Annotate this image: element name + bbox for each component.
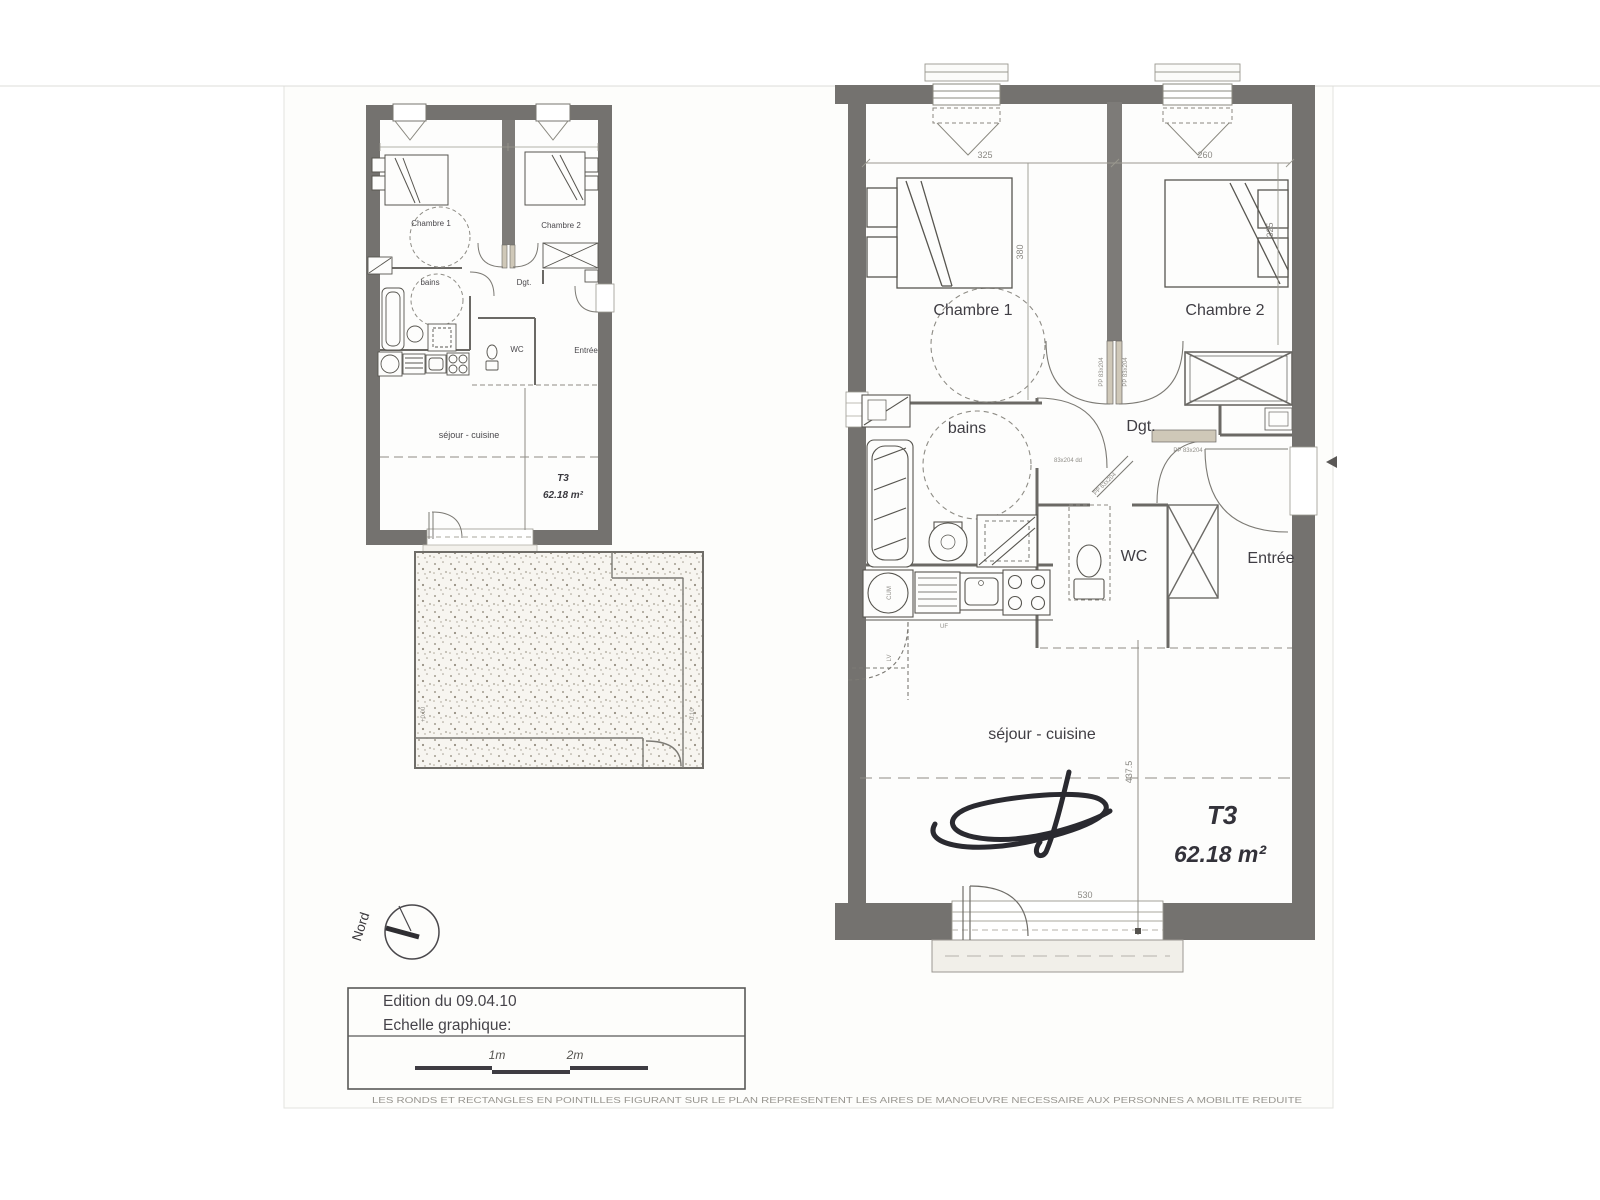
dim-top-left: 325 [977, 150, 992, 160]
floorplan-drawing: Chambre 1 Chambre 2 bains Dgt. WC Entrée… [0, 0, 1600, 1200]
small-label-bains: bains [420, 278, 439, 287]
scale-1m: 1m [489, 1048, 506, 1062]
label-chambre2: Chambre 2 [1185, 302, 1264, 319]
door-label-bains: 83x204 dd [1054, 458, 1082, 464]
small-label-dgt: Dgt. [517, 278, 532, 287]
terrace: +0.00 -0.10 [415, 552, 703, 768]
label-wc: WC [1121, 548, 1148, 565]
label-dgt: Dgt. [1126, 418, 1155, 435]
dim-chambre1-depth: 380 [1015, 244, 1025, 259]
label-chambre1: Chambre 1 [933, 302, 1012, 319]
terrace-level-right: -0.10 [690, 708, 696, 722]
door-label-2: PP 83x204 [1123, 357, 1129, 387]
floor-plan-small: Chambre 1 Chambre 2 bains Dgt. WC Entrée… [366, 104, 614, 556]
appliance-cum: CUM [887, 586, 893, 600]
label-entree: Entrée [1247, 550, 1294, 567]
small-label-chambre2: Chambre 2 [541, 221, 581, 230]
dim-chambre2-depth: 325 [1265, 222, 1275, 237]
small-label-entree: Entrée [574, 346, 598, 355]
small-label-wc: WC [510, 345, 524, 354]
small-unit-area: 62.18 m² [543, 490, 584, 501]
scale-2m: 2m [566, 1048, 584, 1062]
door-label-1: PP 83x204 [1099, 357, 1105, 387]
unit-area: 62.18 m² [1174, 841, 1267, 867]
footer-disclaimer: LES RONDS ET RECTANGLES EN POINTILLES FI… [372, 1096, 1302, 1105]
unit-type: T3 [1207, 800, 1238, 830]
scale-caption: Echelle graphique: [383, 1017, 511, 1034]
label-sejour: séjour - cuisine [988, 726, 1096, 743]
small-label-sejour: séjour - cuisine [439, 430, 500, 440]
appliance-lv: LV [887, 655, 893, 662]
label-bains: bains [948, 420, 986, 437]
terrace-level-left: +0.00 [421, 706, 427, 722]
dim-sejour-depth: 437.5 [1124, 761, 1134, 784]
dim-sejour-width: 530 [1077, 890, 1092, 900]
small-unit-type: T3 [557, 473, 569, 484]
small-label-chambre1: Chambre 1 [411, 219, 451, 228]
scanned-floorplan-page: Chambre 1 Chambre 2 bains Dgt. WC Entrée… [0, 0, 1600, 1200]
edition-date: Edition du 09.04.10 [383, 993, 517, 1010]
scan-page-edges [0, 86, 1600, 1108]
door-label-3: PP 83x204 [1173, 448, 1203, 454]
dim-top-right: 260 [1197, 150, 1212, 160]
appliance-uf: UF [940, 624, 948, 630]
floor-plan-large: Chambre 1 Chambre 2 bains Dgt. WC Entrée… [835, 64, 1337, 972]
